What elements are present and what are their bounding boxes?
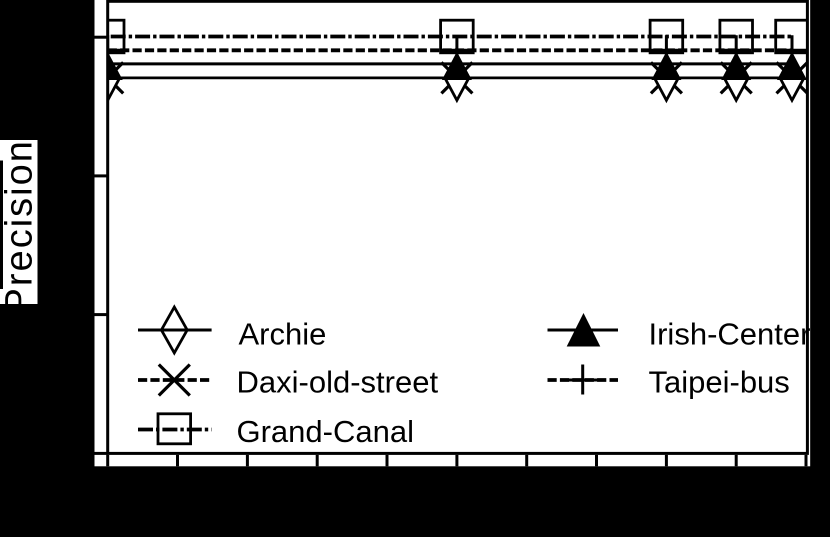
svg-text:Archie: Archie	[239, 316, 327, 351]
svg-text:Grand-Canal: Grand-Canal	[237, 414, 414, 449]
svg-text:Taipei-bus: Taipei-bus	[649, 364, 790, 399]
svg-text:Irish-Center: Irish-Center	[649, 316, 811, 351]
svg-text:Daxi-old-street: Daxi-old-street	[237, 364, 439, 399]
svg-text:Precision: Precision	[0, 139, 41, 313]
